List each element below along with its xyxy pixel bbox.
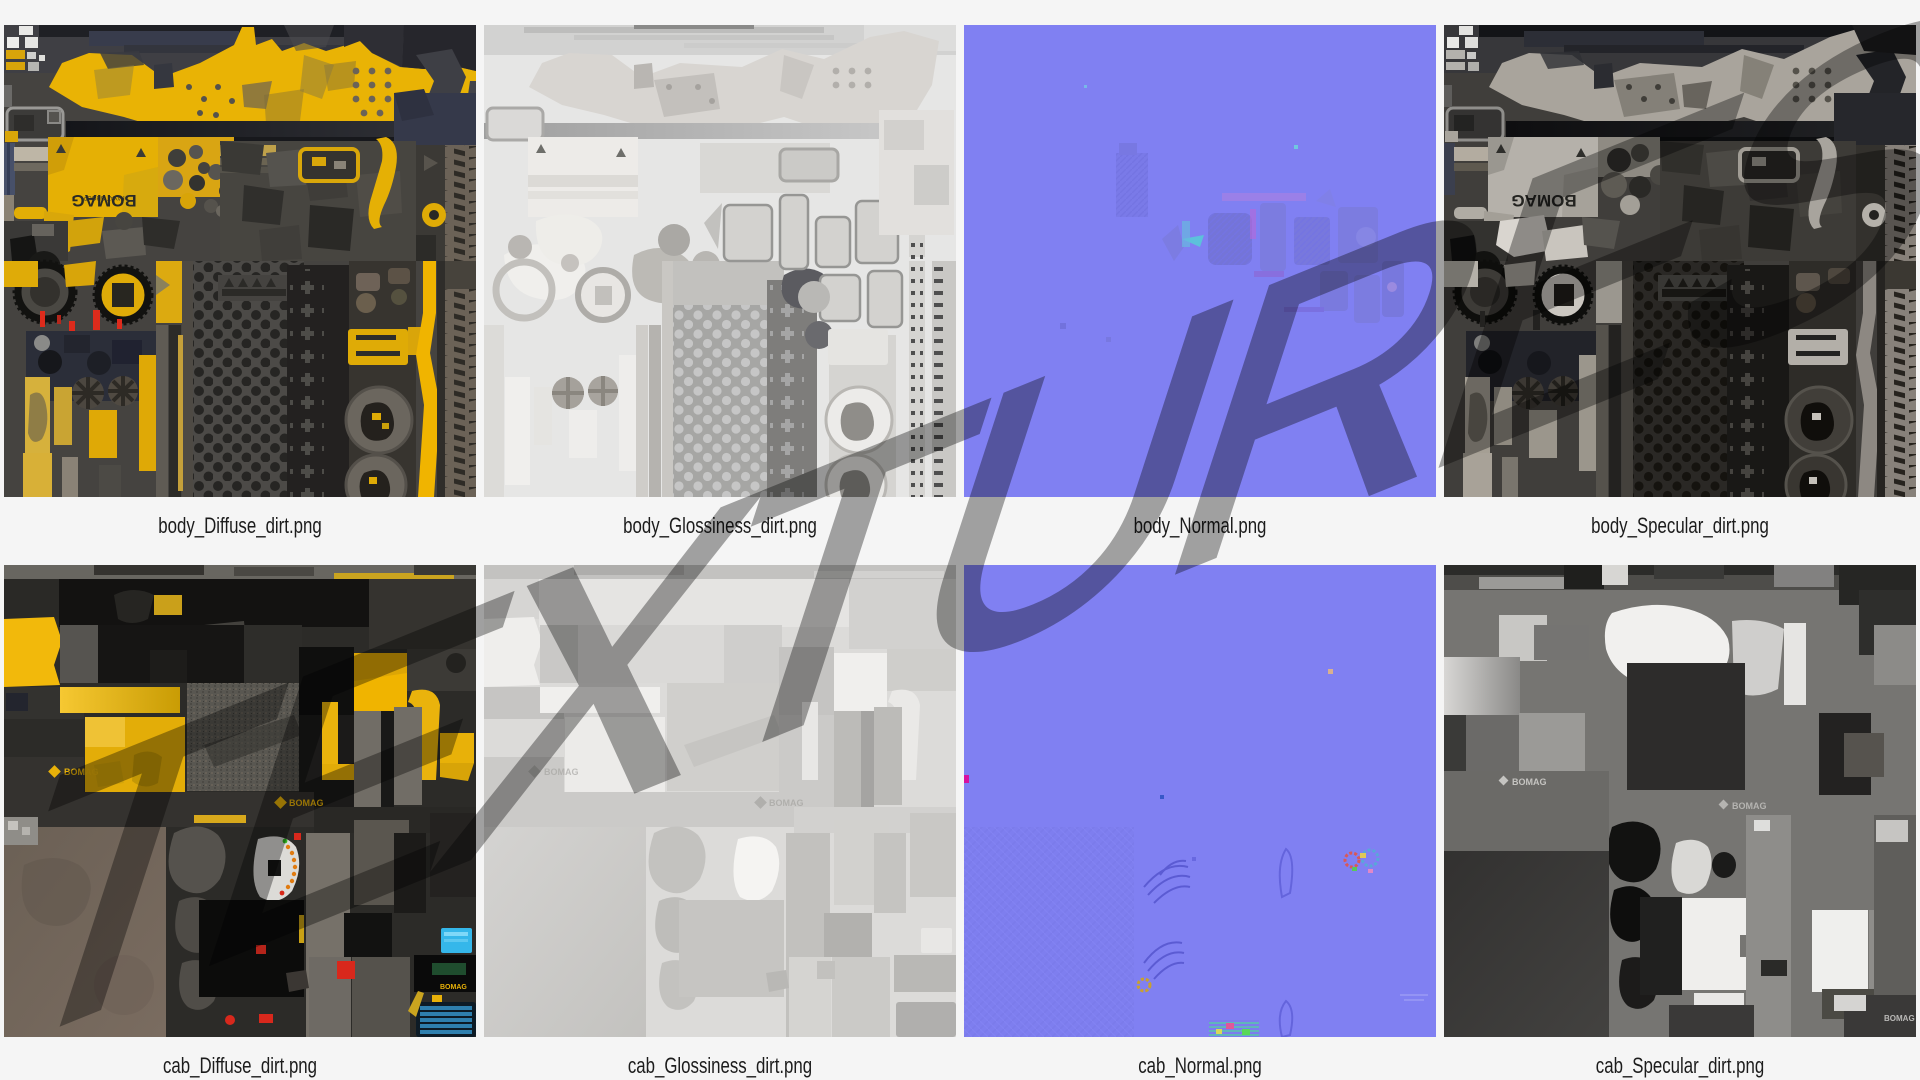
svg-text:TEXTURES: TEXTURES bbox=[0, 0, 1920, 1080]
